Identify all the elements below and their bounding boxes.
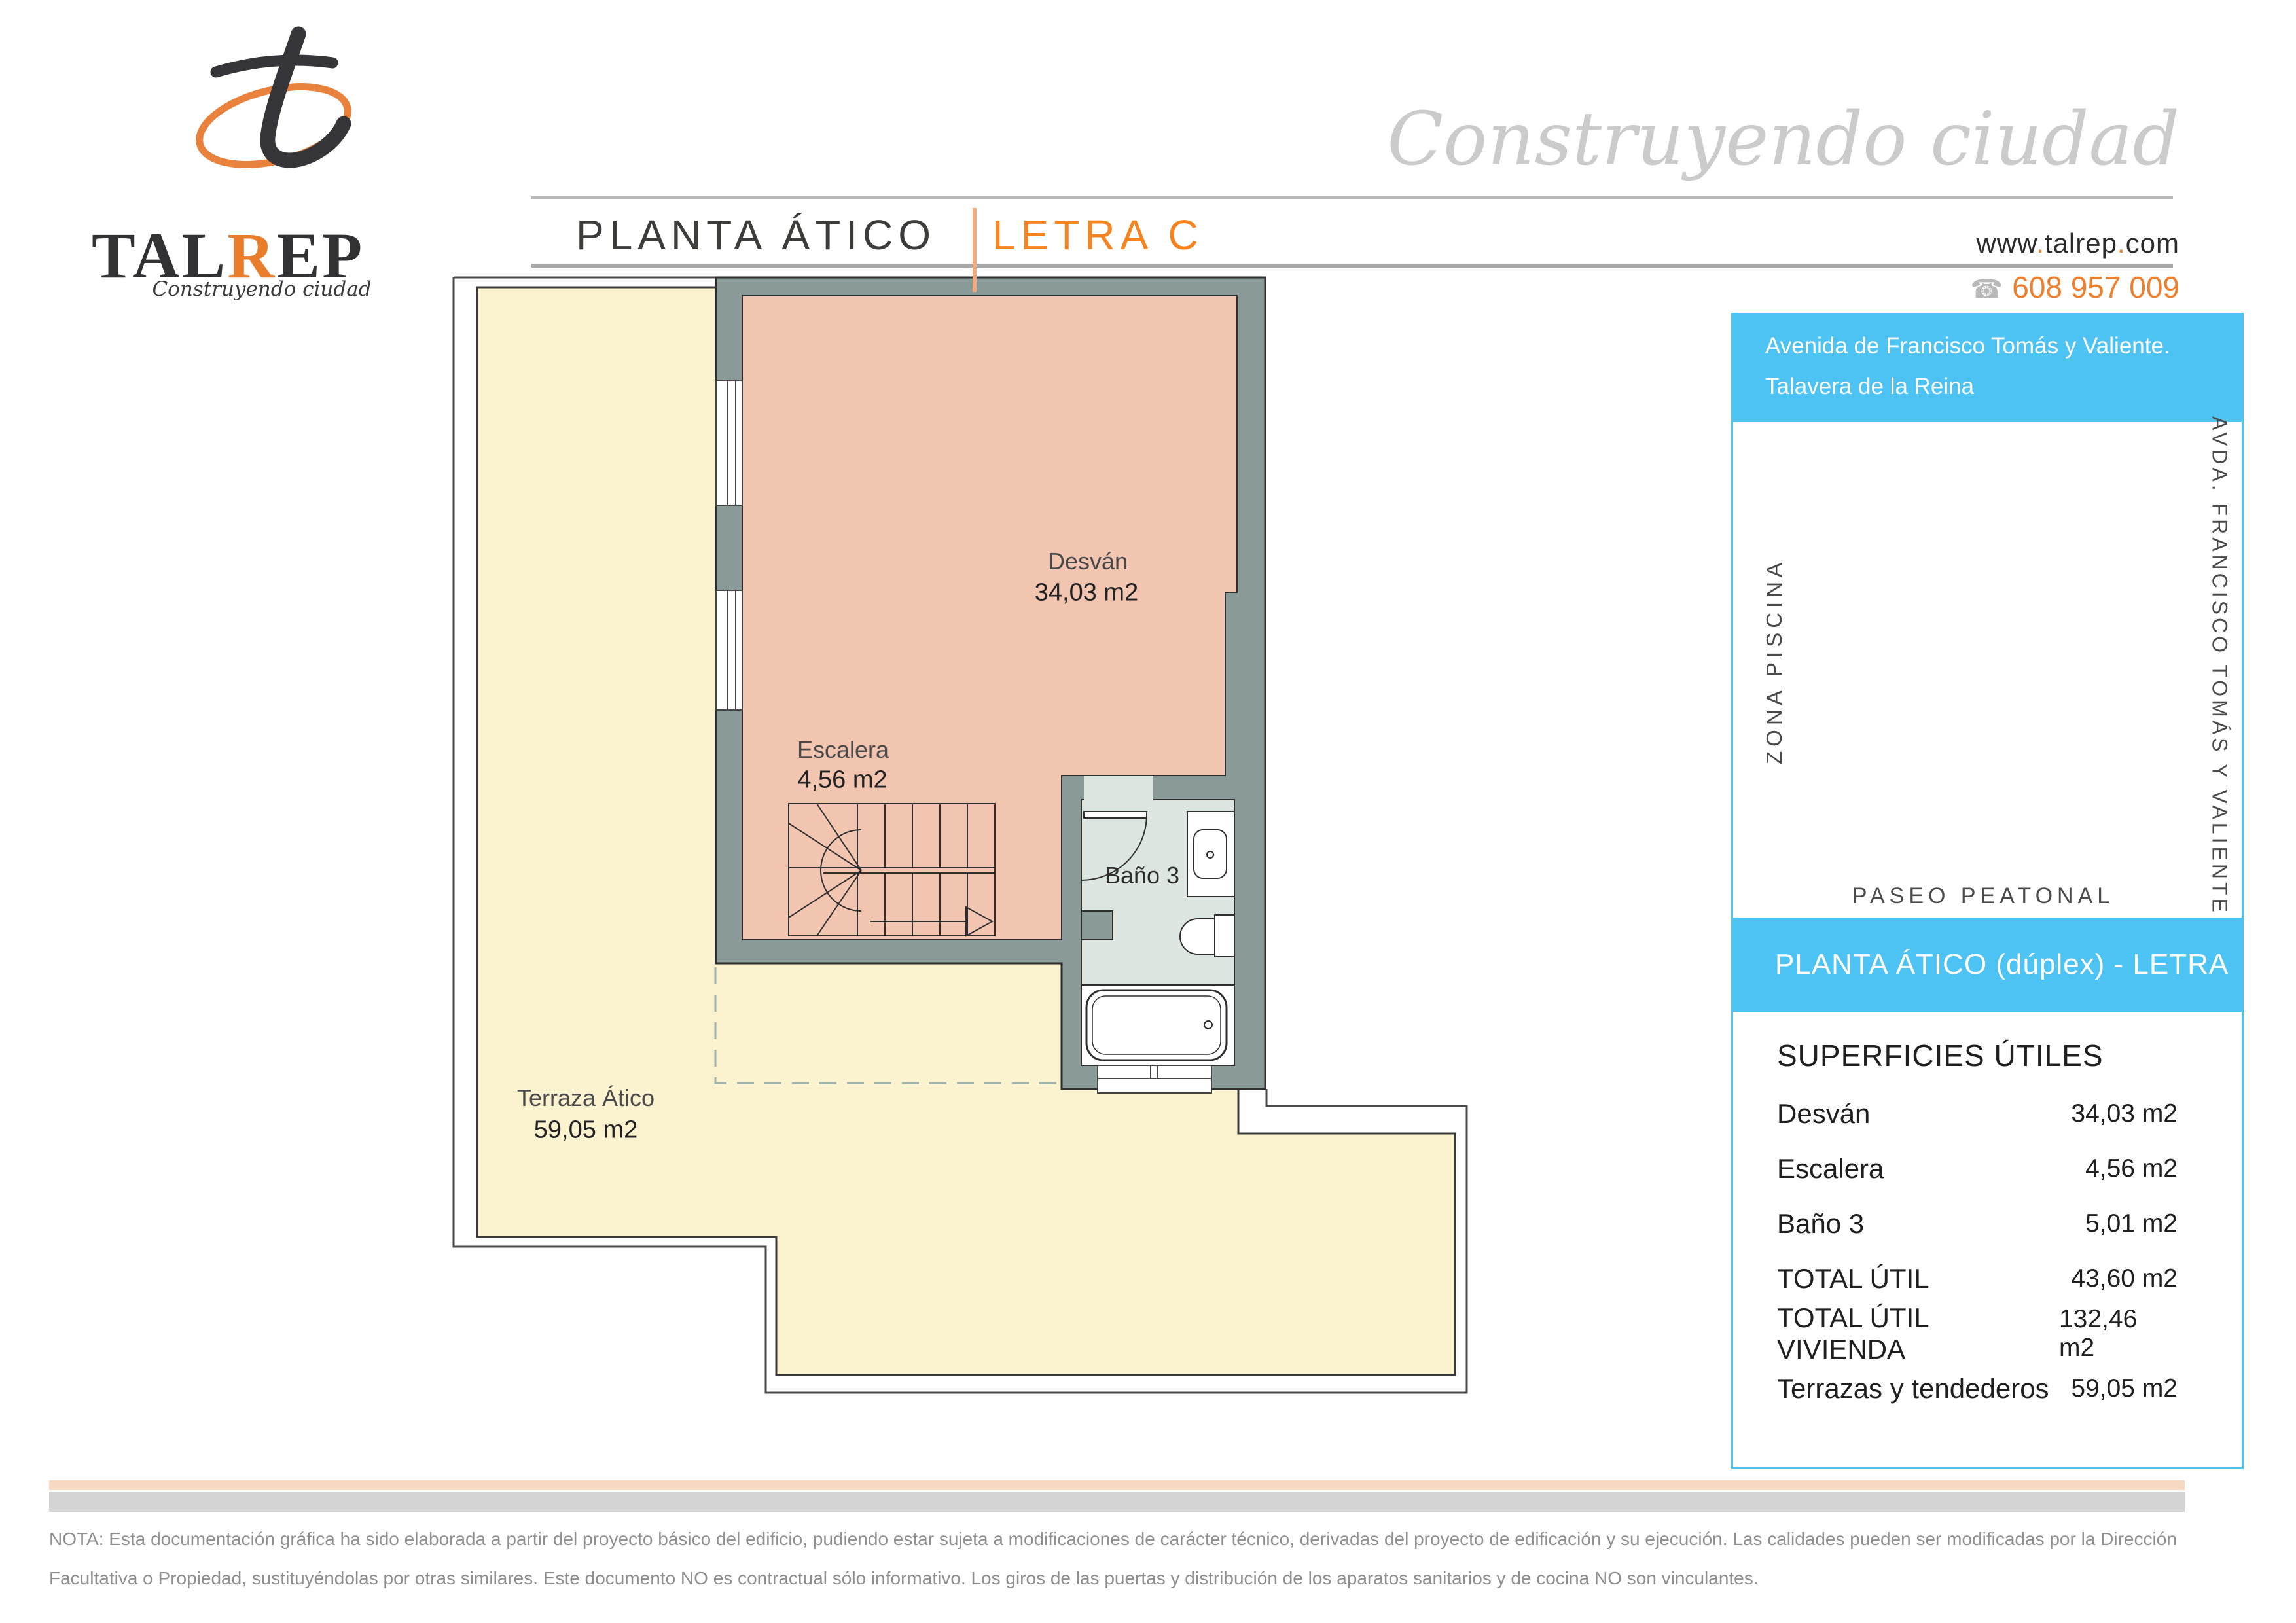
room-label-bano: Baño 3 (1105, 862, 1179, 889)
footer-bar-peach (49, 1480, 2185, 1490)
room-label-terraza: Terraza Ático (517, 1084, 655, 1112)
note-line-1: NOTA: Esta documentación gráfica ha sido… (49, 1529, 2177, 1550)
title-rule-bottom (531, 264, 2173, 268)
room-label-escalera: Escalera (797, 736, 889, 764)
phone-icon: ☎ (1970, 275, 2003, 304)
page: { "brand": { "name_prefix": "TAL", "name… (0, 0, 2296, 1623)
bathroom-door-opening (1084, 776, 1153, 801)
surfaces-title: SUPERFICIES ÚTILES (1777, 1038, 2178, 1073)
surfaces-row: Baño 3 5,01 m2 (1777, 1196, 2178, 1251)
bathtub (1086, 990, 1227, 1060)
site-plan-label-avenida: AVDA. FRANCISCO TOMÁS Y VALIENTE (2204, 416, 2234, 901)
room-label-desvan: Desván (1048, 548, 1128, 575)
bathroom-window (1098, 1065, 1211, 1093)
site-plan-label-zona-piscina: ZONA PISCINA (1759, 548, 1789, 764)
page-subtitle: LETRA C (992, 211, 1204, 259)
website-url: www.talrep.com (1977, 228, 2179, 259)
room-area-terraza: 59,05 m2 (534, 1116, 637, 1145)
surfaces-row: Escalera 4,56 m2 (1777, 1141, 2178, 1196)
phone-number: 608 957 009 (2012, 270, 2179, 304)
footer-bar-gray (49, 1492, 2185, 1512)
surfaces-row: Desván 34,03 m2 (1777, 1086, 2178, 1141)
brand-tagline: Construyendo ciudad (118, 277, 406, 301)
logo-t-icon (191, 34, 355, 178)
surfaces-row: Terrazas y tendederos 59,05 m2 (1777, 1361, 2178, 1416)
unit-title-text: PLANTA ÁTICO (dúplex) - LETRA (1731, 948, 2229, 981)
room-area-escalera: 4,56 m2 (797, 766, 887, 794)
page-title: PLANTA ÁTICO (576, 211, 936, 259)
watermark-script: Construyendo ciudad (1387, 97, 2179, 182)
surfaces-row: TOTAL ÚTIL 43,60 m2 (1777, 1251, 2178, 1306)
address-box: Avenida de Francisco Tomás y Valiente. T… (1731, 313, 2244, 420)
address-line-1: Avenida de Francisco Tomás y Valiente. (1731, 326, 2244, 366)
wall-stub (1081, 911, 1113, 940)
address-line-2: Talavera de la Reina (1731, 366, 2244, 407)
phone-row: ☎608 957 009 (1970, 270, 2179, 305)
title-rule-top (531, 196, 2173, 199)
title-separator (973, 208, 977, 292)
window-left-upper (716, 380, 742, 505)
surfaces-row: TOTAL ÚTIL VIVIENDA 132,46 m2 (1777, 1306, 2178, 1361)
site-plan-label-paseo-peatonal: PASEO PEATONAL (1731, 883, 2235, 909)
floor-plan-drawing (454, 277, 1467, 1393)
sink (1187, 811, 1234, 897)
unit-title-bar: PLANTA ÁTICO (dúplex) - LETRA C (1731, 919, 2244, 1010)
window-left-lower (716, 590, 742, 710)
bathroom-door-leaf (1084, 811, 1147, 818)
surfaces-panel: SUPERFICIES ÚTILES Desván 34,03 m2 Escal… (1731, 1010, 2244, 1469)
site-plan-panel (1731, 420, 2244, 919)
room-area-desvan: 34,03 m2 (1035, 579, 1138, 607)
note-line-2: Facultativa o Propiedad, sustituyéndolas… (49, 1568, 1759, 1589)
toilet (1180, 915, 1234, 957)
unit-title-letter: C (2238, 948, 2296, 988)
